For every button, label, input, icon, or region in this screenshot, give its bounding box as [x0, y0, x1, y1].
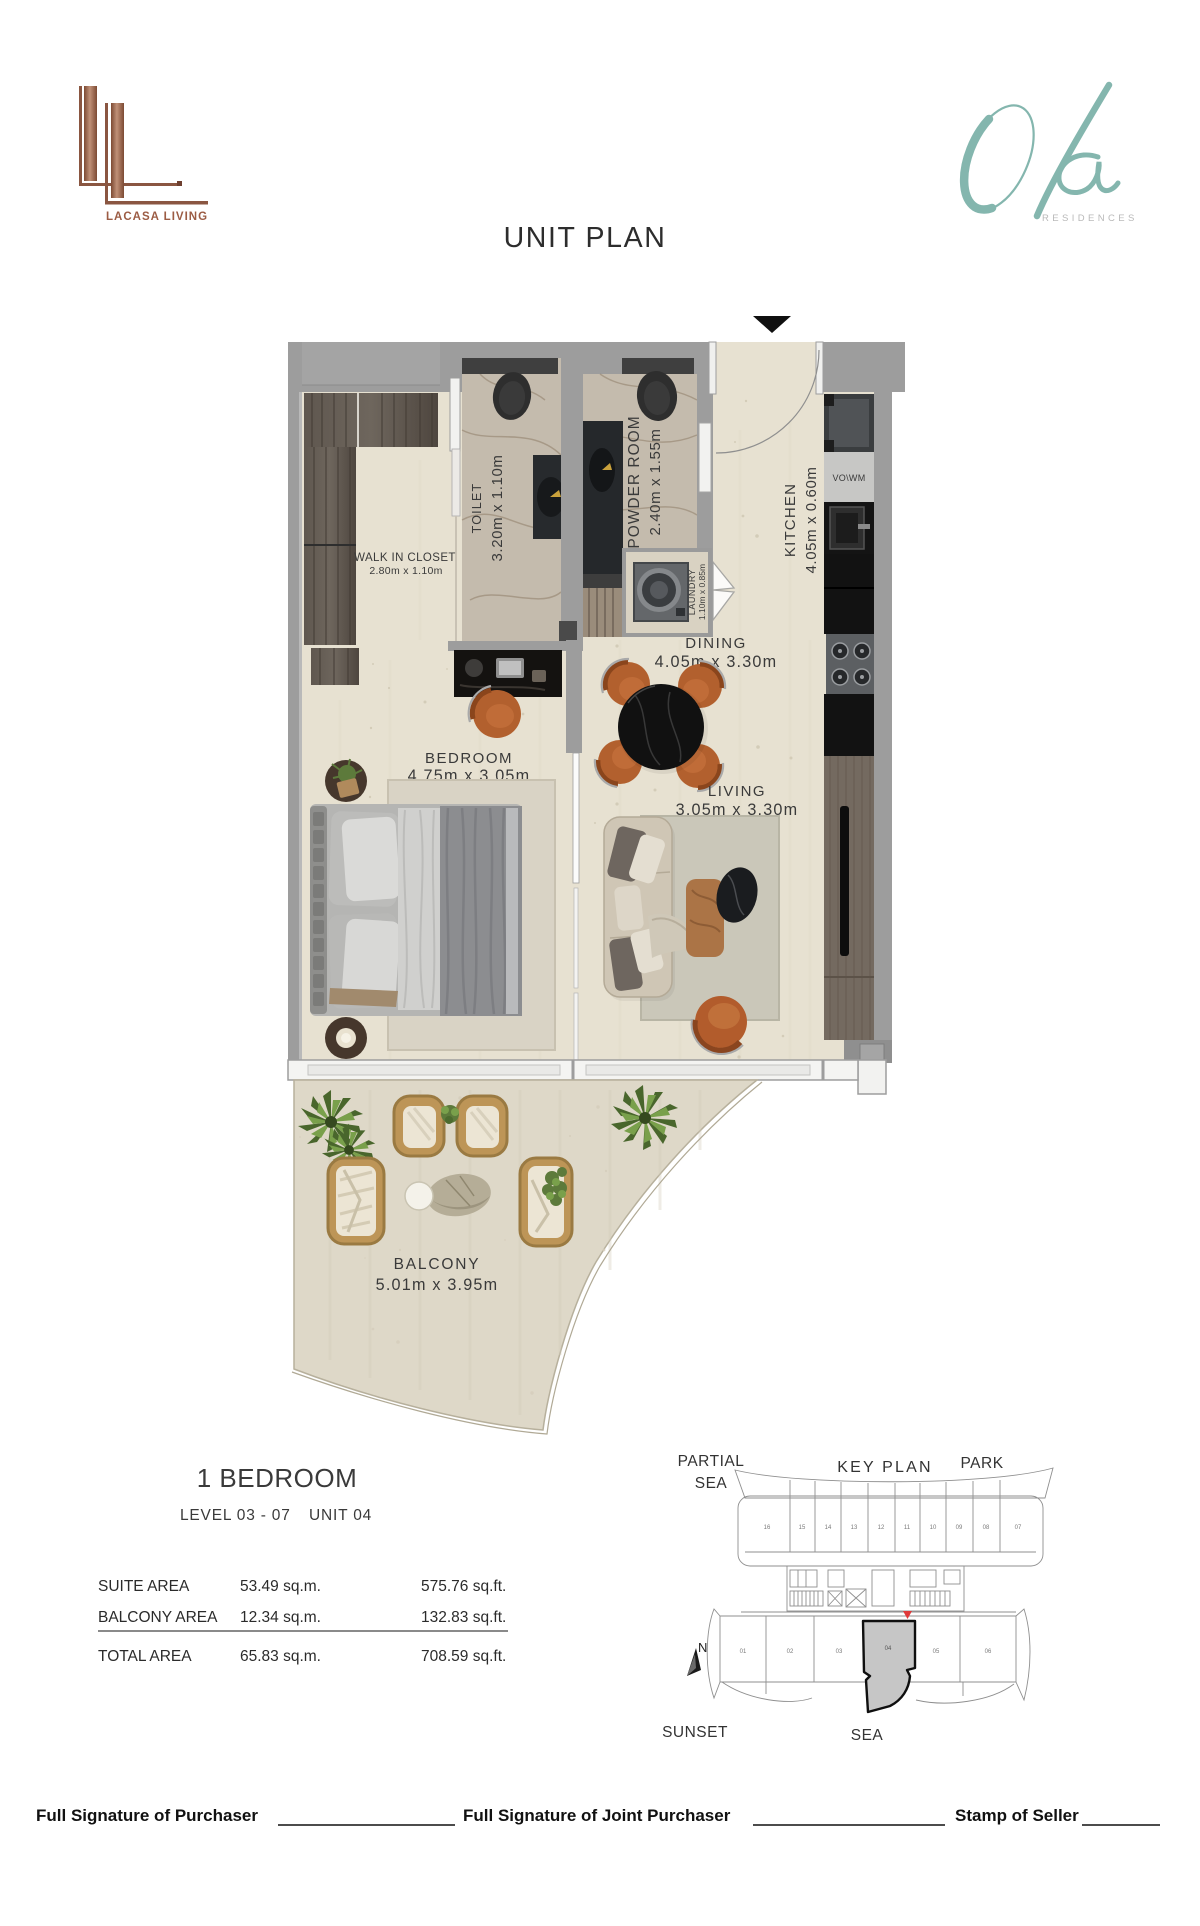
svg-text:04: 04	[885, 1646, 892, 1652]
svg-text:01: 01	[740, 1649, 747, 1655]
svg-text:SUITE AREA: SUITE AREA	[98, 1578, 190, 1595]
svg-text:10: 10	[930, 1525, 937, 1531]
svg-text:708.59 sq.ft.: 708.59 sq.ft.	[421, 1648, 506, 1665]
svg-text:13: 13	[851, 1525, 858, 1531]
svg-text:2.40m x 1.55m: 2.40m x 1.55m	[647, 428, 664, 535]
svg-text:LAUNDRY: LAUNDRY	[687, 569, 697, 615]
svg-text:LIVING: LIVING	[708, 783, 766, 800]
svg-text:Full Signature of Purchaser: Full Signature of Purchaser	[36, 1806, 258, 1825]
svg-text:09: 09	[956, 1525, 963, 1531]
svg-text:Stamp of Seller: Stamp of Seller	[955, 1806, 1079, 1825]
svg-text:132.83 sq.ft.: 132.83 sq.ft.	[421, 1609, 506, 1626]
svg-text:2.80m x 1.10m: 2.80m x 1.10m	[369, 565, 442, 577]
svg-text:UNIT PLAN: UNIT PLAN	[504, 222, 667, 254]
svg-text:PARTIAL: PARTIAL	[678, 1453, 745, 1470]
svg-text:06: 06	[985, 1649, 992, 1655]
svg-text:SEA: SEA	[851, 1727, 884, 1744]
svg-text:LACASA LIVING: LACASA LIVING	[106, 211, 208, 223]
svg-text:1 BEDROOM: 1 BEDROOM	[197, 1463, 358, 1493]
svg-text:LEVEL 03 - 07: LEVEL 03 - 07	[180, 1507, 291, 1524]
svg-text:SUNSET: SUNSET	[662, 1724, 728, 1741]
svg-text:1.10m x 0.85m: 1.10m x 0.85m	[697, 564, 707, 620]
svg-text:UNIT 04: UNIT 04	[309, 1507, 372, 1524]
svg-text:4.05m x 0.60m: 4.05m x 0.60m	[803, 466, 820, 573]
svg-text:07: 07	[1015, 1525, 1022, 1531]
svg-text:Full Signature of Joint Purcha: Full Signature of Joint Purchaser	[463, 1806, 731, 1825]
svg-text:03: 03	[836, 1649, 843, 1655]
svg-text:575.76 sq.ft.: 575.76 sq.ft.	[421, 1578, 506, 1595]
svg-text:5.01m x 3.95m: 5.01m x 3.95m	[376, 1276, 499, 1294]
svg-text:15: 15	[799, 1525, 806, 1531]
svg-text:KEY PLAN: KEY PLAN	[837, 1459, 933, 1476]
svg-text:11: 11	[904, 1525, 911, 1531]
svg-text:N: N	[698, 1640, 707, 1655]
svg-text:53.49 sq.m.: 53.49 sq.m.	[240, 1578, 321, 1595]
svg-text:08: 08	[983, 1525, 990, 1531]
svg-text:RESIDENCES: RESIDENCES	[1042, 213, 1138, 224]
svg-text:16: 16	[764, 1525, 771, 1531]
svg-text:POWDER ROOM: POWDER ROOM	[626, 415, 643, 548]
svg-text:KITCHEN: KITCHEN	[782, 483, 799, 557]
svg-text:14: 14	[825, 1525, 832, 1531]
svg-text:BALCONY AREA: BALCONY AREA	[98, 1609, 218, 1626]
svg-text:12.34 sq.m.: 12.34 sq.m.	[240, 1609, 321, 1626]
svg-text:BALCONY: BALCONY	[394, 1256, 481, 1273]
svg-text:12: 12	[878, 1525, 885, 1531]
svg-text:DINING: DINING	[685, 635, 747, 652]
svg-text:02: 02	[787, 1649, 794, 1655]
svg-text:SEA: SEA	[695, 1475, 728, 1492]
svg-text:VO\WM: VO\WM	[833, 473, 866, 483]
svg-text:WALK IN CLOSET: WALK IN CLOSET	[354, 552, 456, 564]
svg-text:05: 05	[933, 1649, 940, 1655]
svg-text:65.83 sq.m.: 65.83 sq.m.	[240, 1648, 321, 1665]
svg-text:PARK: PARK	[960, 1455, 1003, 1472]
svg-text:TOTAL AREA: TOTAL AREA	[98, 1648, 192, 1665]
svg-text:3.20m x 1.10m: 3.20m x 1.10m	[489, 454, 506, 561]
svg-text:BEDROOM: BEDROOM	[425, 750, 513, 767]
svg-text:TOILET: TOILET	[470, 483, 484, 534]
